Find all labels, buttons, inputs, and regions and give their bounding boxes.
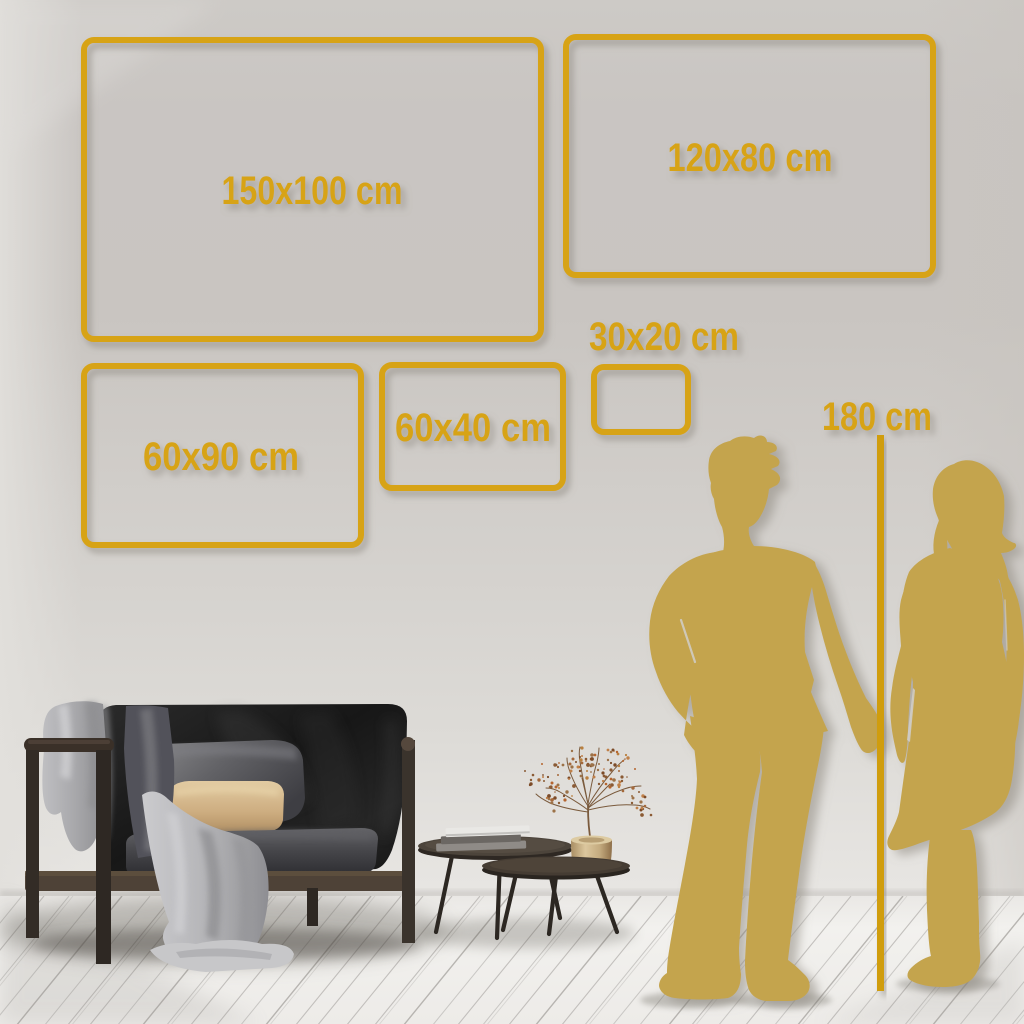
svg-text:180 cm: 180 cm bbox=[822, 395, 932, 439]
svg-text:60x40 cm: 60x40 cm bbox=[395, 406, 551, 450]
svg-text:30x20 cm: 30x20 cm bbox=[589, 315, 739, 359]
svg-text:150x100 cm: 150x100 cm bbox=[222, 169, 403, 213]
svg-text:120x80 cm: 120x80 cm bbox=[668, 136, 833, 180]
svg-text:60x90 cm: 60x90 cm bbox=[143, 435, 299, 479]
